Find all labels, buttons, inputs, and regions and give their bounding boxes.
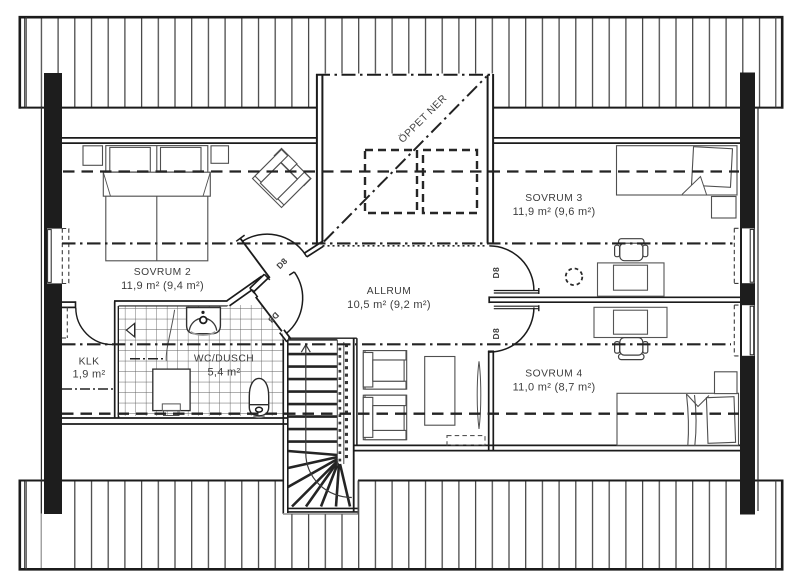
svg-text:11,9 m² (9,4 m²): 11,9 m² (9,4 m²) — [121, 280, 204, 292]
svg-text:SOVRUM 3: SOVRUM 3 — [525, 193, 582, 204]
svg-text:SOVRUM 4: SOVRUM 4 — [525, 369, 582, 380]
svg-text:WC/DUSCH: WC/DUSCH — [194, 354, 254, 365]
svg-text:1,9 m²: 1,9 m² — [73, 369, 106, 381]
svg-text:10,5 m² (9,2 m²): 10,5 m² (9,2 m²) — [347, 299, 431, 311]
svg-text:KLK: KLK — [79, 357, 100, 368]
svg-text:11,0 m² (8,7 m²): 11,0 m² (8,7 m²) — [513, 382, 596, 394]
svg-text:D8: D8 — [491, 328, 501, 339]
svg-text:D8: D8 — [491, 267, 501, 278]
svg-text:11,9 m² (9,6 m²): 11,9 m² (9,6 m²) — [513, 206, 596, 218]
svg-text:SOVRUM 2: SOVRUM 2 — [134, 267, 191, 278]
svg-text:5,4 m²: 5,4 m² — [208, 367, 241, 379]
svg-text:ALLRUM: ALLRUM — [367, 286, 411, 297]
